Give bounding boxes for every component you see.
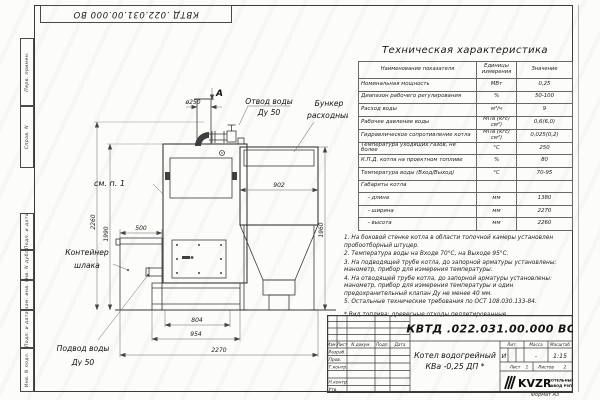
frame-box-vzam-inv: Взам. инв. N bbox=[20, 280, 34, 310]
table-cell: Рабочее давление воды bbox=[359, 116, 477, 129]
table-cell: 0,25 bbox=[517, 79, 573, 92]
product-name-1: Котел водогрейный bbox=[414, 351, 496, 360]
company-logo: KVZR КОТЕЛЬНЫЙ ЗАВОД РЭП bbox=[505, 376, 573, 390]
table-cell: 2270 bbox=[517, 205, 573, 218]
table-row: - длинамм1380 bbox=[359, 193, 573, 206]
frame-box-podp-data-2: Подп. и дата bbox=[20, 310, 34, 348]
table-cell: Диапазон рабочего регулирования bbox=[359, 91, 477, 104]
water-in-label-2: Ду 50 bbox=[71, 358, 95, 366]
table-cell: МПа (кгс/см²) bbox=[477, 116, 517, 129]
svg-text:-: - bbox=[535, 353, 537, 360]
table-cell: % bbox=[477, 155, 517, 168]
table-cell: Гидравлическое сопротивление котла bbox=[359, 129, 477, 142]
svg-text:N докум.: N докум. bbox=[351, 342, 370, 347]
svg-text:902: 902 bbox=[273, 182, 285, 189]
svg-text:Разраб.: Разраб. bbox=[329, 350, 346, 356]
table-cell: 0,6(6,0) bbox=[517, 116, 573, 129]
table-cell bbox=[477, 180, 517, 193]
view-a-arrow: А bbox=[212, 88, 223, 100]
table-row: - высотамм2260 bbox=[359, 218, 573, 231]
title-block: Изм. Лист N докум. Подп. Дата Разраб. Пр… bbox=[327, 315, 573, 393]
sheet-edge-line bbox=[578, 5, 579, 392]
svg-text:500: 500 bbox=[135, 225, 147, 232]
bunker-label-2: расходный bbox=[306, 111, 348, 120]
tech-table-header-row: Наименование показателя Единицы измерени… bbox=[359, 62, 573, 79]
table-row: Температура воды (Вход/Выход)°С70-95 bbox=[359, 168, 573, 181]
table-cell: °С bbox=[477, 142, 517, 155]
svg-text:Масштаб: Масштаб bbox=[550, 342, 570, 347]
col-header-units: Единицы измерения bbox=[477, 62, 517, 79]
table-row: Диапазон рабочего регулирования%50-100 bbox=[359, 91, 573, 104]
svg-text:ø250: ø250 bbox=[184, 99, 200, 106]
svg-text:954: 954 bbox=[190, 331, 202, 338]
svg-text:2260: 2260 bbox=[90, 214, 97, 229]
svg-text:Дата: Дата bbox=[394, 342, 406, 347]
table-row: - ширинамм2270 bbox=[359, 205, 573, 218]
table-cell: 70-95 bbox=[517, 168, 573, 181]
tech-table-body: Номинальная мощностьМВт0,25Диапазон рабо… bbox=[359, 79, 573, 231]
svg-text:804: 804 bbox=[191, 317, 203, 324]
water-outlet-valve bbox=[195, 125, 244, 146]
col-header-value: Значение bbox=[517, 62, 573, 79]
tech-table: Наименование показателя Единицы измерени… bbox=[358, 61, 573, 231]
note-item: 5. Остальные технические требования по О… bbox=[344, 299, 574, 307]
slag-label-1: Контейнер bbox=[65, 248, 109, 257]
svg-text:Пров.: Пров. bbox=[329, 357, 342, 363]
role-labels: Разраб. Пров. Т.контр. Н.контр. Утв. bbox=[329, 350, 349, 394]
notes-list: 1. На боковой стенке котла в области топ… bbox=[344, 235, 574, 307]
table-row: Рабочее давление водыМПа (кгс/см²)0,6(6,… bbox=[359, 116, 573, 129]
water-out-label-1: Отвод воды bbox=[245, 97, 293, 106]
doc-number: КВТД .022.031.00.000 ВО bbox=[406, 323, 573, 336]
see-note-label: см. п. 1 bbox=[94, 179, 125, 188]
frame-box-perv-primen: Перв. примен. bbox=[20, 38, 34, 106]
table-cell: Габариты котла bbox=[359, 180, 477, 193]
frame-box-sprav-n: Справ. N bbox=[20, 106, 34, 168]
table-cell: Температура уходящих газов, не более bbox=[359, 142, 477, 155]
frame-box-podp-data-1: Подп. и дата bbox=[20, 213, 34, 250]
svg-text:2270: 2270 bbox=[211, 347, 226, 354]
svg-text:Масса: Масса bbox=[529, 342, 543, 347]
note-item: 2. Температура воды на Входе 70°С, на Вы… bbox=[344, 251, 574, 259]
table-cell: % bbox=[477, 91, 517, 104]
table-cell: 50-100 bbox=[517, 91, 573, 104]
table-row: Расход водым³/ч9 bbox=[359, 104, 573, 117]
note-item: 1. На боковой стенке котла в области топ… bbox=[344, 235, 574, 250]
tech-table-title: Техническая характеристика bbox=[358, 45, 572, 56]
table-row: Номинальная мощностьМВт0,25 bbox=[359, 79, 573, 92]
svg-text:Лит.: Лит. bbox=[506, 342, 517, 347]
frame-box-inv-dubl: Инв. N дубл. bbox=[20, 250, 34, 280]
company-name-2: ЗАВОД РЭП bbox=[548, 384, 572, 388]
sheet-counts: Лист 1 Листов 2 bbox=[509, 365, 567, 370]
svg-text:Листов: Листов bbox=[537, 365, 554, 370]
table-cell: 1380 bbox=[517, 193, 573, 206]
table-cell: мм bbox=[477, 218, 517, 231]
table-cell: К.П.Д. котла на проектном топливе bbox=[359, 155, 477, 168]
doc-number-top: КВТД .022.031.00.000 ВО bbox=[40, 5, 232, 23]
lit-massa-masshtab: Лит. Масса Масштаб И - 1:15 bbox=[502, 342, 571, 360]
svg-text:Лист: Лист bbox=[336, 342, 348, 347]
svg-text:1: 1 bbox=[526, 365, 529, 370]
notes-block: 1. На боковой стенке котла в области топ… bbox=[344, 235, 574, 320]
table-cell: м³/ч bbox=[477, 104, 517, 117]
table-cell: - ширина bbox=[359, 205, 477, 218]
doc-number-top-text: КВТД .022.031.00.000 ВО bbox=[73, 9, 199, 19]
water-out-label-2: Ду 50 bbox=[257, 108, 281, 117]
table-cell: 80 bbox=[517, 155, 573, 168]
table-cell: Температура воды (Вход/Выход) bbox=[359, 168, 477, 181]
table-cell: Номинальная мощность bbox=[359, 79, 477, 92]
view-a-label: А bbox=[215, 89, 223, 99]
table-cell: Расход воды bbox=[359, 104, 477, 117]
svg-text:И: И bbox=[502, 353, 507, 360]
note-item: 3. На подводящей трубе котла, до запорно… bbox=[344, 260, 574, 275]
boiler-drawing: А ø250 bbox=[36, 26, 348, 366]
svg-text:1990: 1990 bbox=[103, 226, 110, 241]
dimensions: 902 1960 2260 1990 500 804 954 bbox=[90, 122, 328, 357]
spring-logo-icon bbox=[505, 376, 515, 389]
table-cell: 2260 bbox=[517, 218, 573, 231]
table-cell: мм bbox=[477, 205, 517, 218]
table-cell: °С bbox=[477, 168, 517, 181]
table-row: Габариты котла bbox=[359, 180, 573, 193]
logo-text: KVZR bbox=[518, 377, 552, 390]
table-cell: мм bbox=[477, 193, 517, 206]
slag-container bbox=[116, 238, 162, 310]
svg-text:1:15: 1:15 bbox=[553, 353, 567, 360]
revision-header: Изм. Лист N докум. Подп. Дата bbox=[327, 342, 406, 347]
svg-text:Подп.: Подп. bbox=[376, 342, 389, 347]
company-name-1: КОТЕЛЬНЫЙ bbox=[548, 378, 573, 383]
table-cell: 0,025(0,2) bbox=[517, 129, 573, 142]
water-in-label-1: Подвод воды bbox=[57, 344, 110, 353]
note-item: 4. На отводящей трубе котла, до запорной… bbox=[344, 276, 574, 299]
table-row: К.П.Д. котла на проектном топливе%80 bbox=[359, 155, 573, 168]
col-header-name: Наименование показателя bbox=[359, 62, 477, 79]
slag-label-2: шлака bbox=[74, 261, 100, 270]
bunker-label-1: Бункер bbox=[315, 99, 344, 108]
table-cell: 9 bbox=[517, 104, 573, 117]
drawing-sheet: КВТД .022.031.00.000 ВО Перв. примен. Сп… bbox=[0, 0, 600, 400]
frame-box-inv-podl: Инв. N подл. bbox=[20, 348, 34, 392]
format-label: Формат А3 bbox=[495, 392, 595, 398]
svg-text:2: 2 bbox=[564, 365, 567, 370]
svg-text:Н.контр.: Н.контр. bbox=[329, 380, 349, 386]
svg-text:1960: 1960 bbox=[318, 222, 325, 237]
svg-text:Т.контр.: Т.контр. bbox=[329, 365, 348, 371]
svg-text:Лист: Лист bbox=[509, 365, 521, 370]
table-row: Гидравлическое сопротивление котлаМПа (к… bbox=[359, 129, 573, 142]
table-cell: - высота bbox=[359, 218, 477, 231]
table-cell: МПа (кгс/см²) bbox=[477, 129, 517, 142]
table-cell: МВт bbox=[477, 79, 517, 92]
fuel-bunker bbox=[240, 147, 318, 310]
table-cell bbox=[517, 180, 573, 193]
product-name-2: КВа -0,25 ДП * bbox=[425, 362, 484, 371]
svg-text:Изм.: Изм. bbox=[327, 342, 337, 347]
table-cell: 250 bbox=[517, 142, 573, 155]
dim-250: ø250 bbox=[184, 99, 222, 107]
table-row: Температура уходящих газов, не более°С25… bbox=[359, 142, 573, 155]
boiler-body bbox=[146, 144, 247, 310]
table-cell: - длина bbox=[359, 193, 477, 206]
svg-text:Утв.: Утв. bbox=[329, 387, 338, 393]
